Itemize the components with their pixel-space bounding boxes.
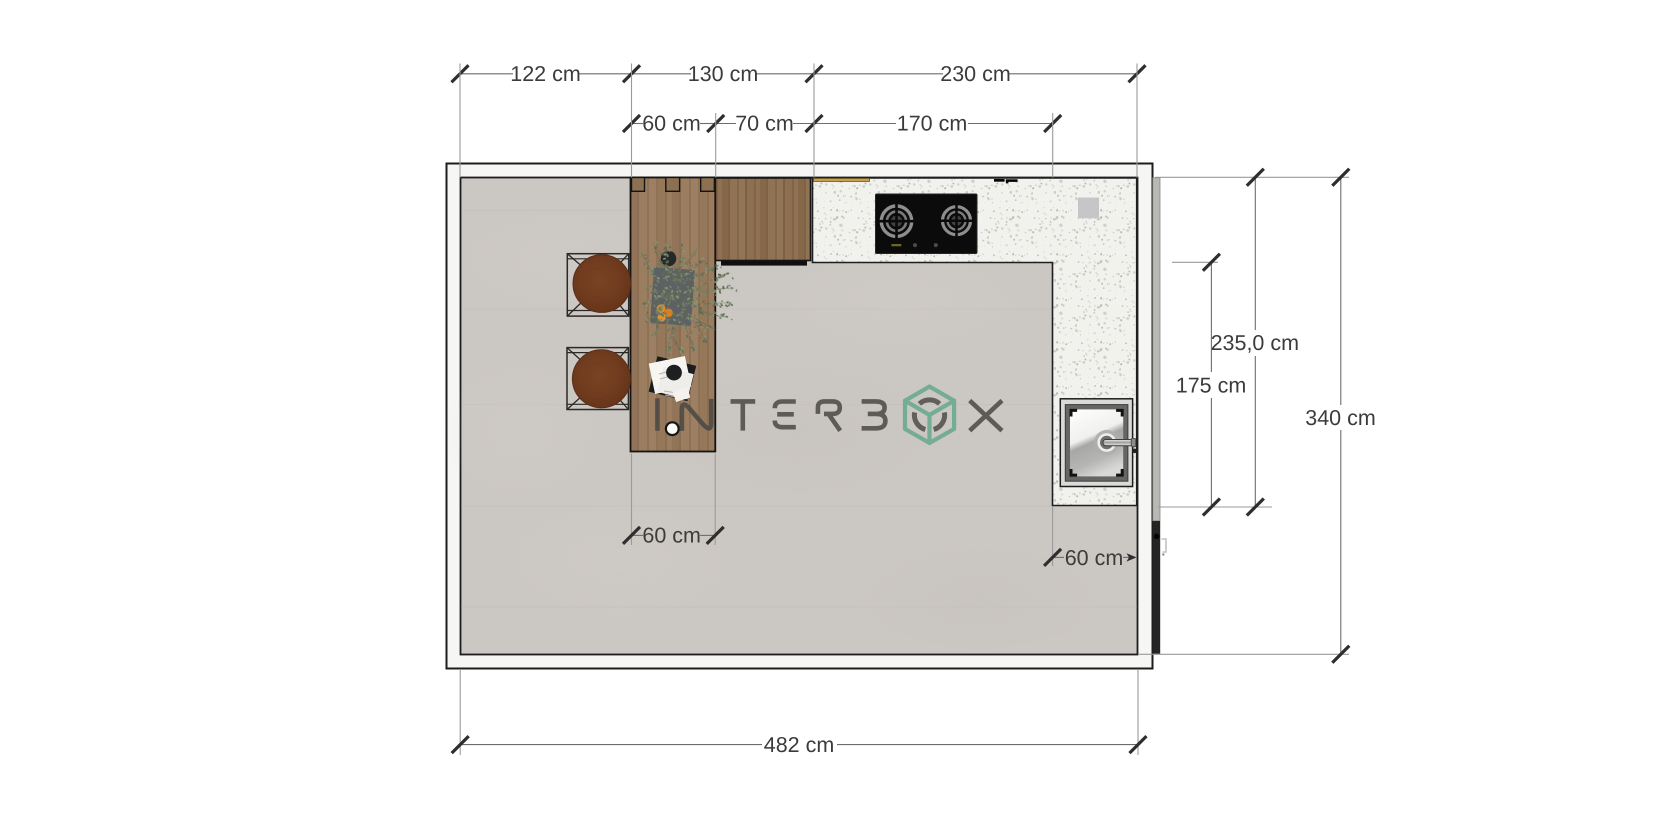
- svg-text:130 cm: 130 cm: [688, 62, 759, 86]
- svg-text:60 cm: 60 cm: [1065, 546, 1124, 570]
- svg-text:482 cm: 482 cm: [764, 733, 835, 757]
- svg-text:70 cm: 70 cm: [735, 112, 794, 136]
- svg-text:60 cm: 60 cm: [642, 524, 701, 548]
- svg-text:340 cm: 340 cm: [1305, 406, 1376, 430]
- svg-text:230 cm: 230 cm: [940, 62, 1011, 86]
- svg-text:235,0 cm: 235,0 cm: [1211, 331, 1299, 355]
- svg-text:122 cm: 122 cm: [510, 62, 581, 86]
- svg-text:175 cm: 175 cm: [1176, 374, 1247, 398]
- svg-text:170 cm: 170 cm: [897, 112, 968, 136]
- svg-text:60 cm: 60 cm: [642, 112, 701, 136]
